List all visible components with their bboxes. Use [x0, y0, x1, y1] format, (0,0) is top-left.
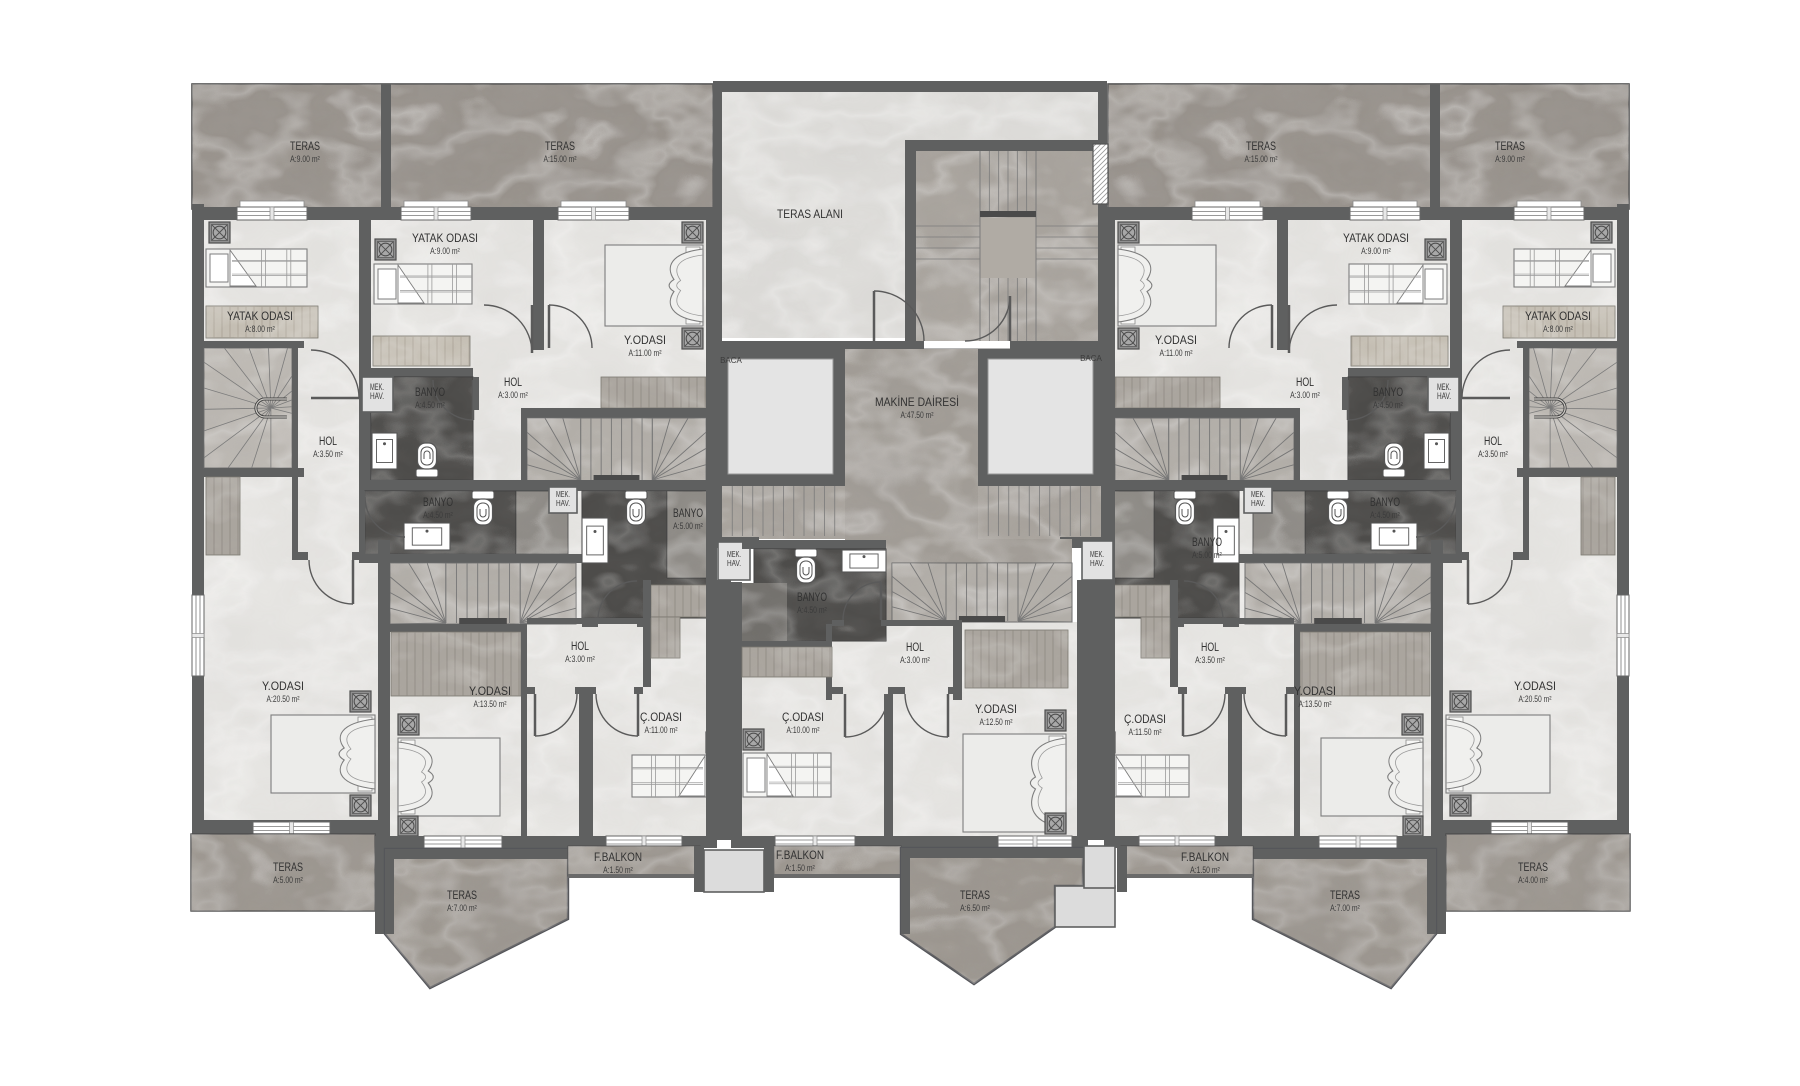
svg-text:A:20.50 m²: A:20.50 m² [1519, 694, 1552, 704]
svg-text:A:9.00 m²: A:9.00 m² [1361, 246, 1391, 256]
svg-text:A:13.50 m²: A:13.50 m² [474, 699, 507, 709]
svg-text:TERAS: TERAS [1518, 860, 1548, 874]
svg-text:HAV.: HAV. [727, 558, 741, 568]
svg-text:BANYO: BANYO [1192, 535, 1222, 549]
svg-text:HOL: HOL [504, 375, 522, 389]
svg-text:A:12.50 m²: A:12.50 m² [980, 717, 1013, 727]
svg-text:BANYO: BANYO [1370, 495, 1400, 509]
svg-text:Y.ODASI: Y.ODASI [975, 702, 1017, 716]
svg-text:A:9.00 m²: A:9.00 m² [430, 246, 460, 256]
svg-text:BANYO: BANYO [673, 506, 703, 520]
svg-text:BANYO: BANYO [423, 495, 453, 509]
svg-text:HAV.: HAV. [556, 499, 570, 508]
svg-text:A:11.00 m²: A:11.00 m² [645, 725, 678, 735]
svg-text:A:9.00 m²: A:9.00 m² [1495, 154, 1525, 164]
svg-text:BANYO: BANYO [1373, 385, 1403, 399]
svg-text:HOL: HOL [1296, 375, 1314, 389]
svg-text:HAV.: HAV. [370, 391, 384, 401]
svg-text:HOL: HOL [319, 434, 337, 448]
svg-text:A:4.50 m²: A:4.50 m² [423, 510, 453, 520]
svg-text:HOL: HOL [1201, 640, 1219, 654]
svg-text:A:4.50 m²: A:4.50 m² [1370, 510, 1400, 520]
svg-text:Y.ODASI: Y.ODASI [1514, 679, 1556, 693]
svg-text:A:6.50 m²: A:6.50 m² [960, 903, 990, 913]
svg-text:A:5.00 m²: A:5.00 m² [673, 521, 703, 531]
svg-text:A:1.50 m²: A:1.50 m² [603, 865, 633, 875]
svg-text:TERAS: TERAS [290, 139, 320, 153]
svg-text:Y.ODASI: Y.ODASI [624, 333, 666, 347]
svg-text:YATAK ODASI: YATAK ODASI [412, 231, 478, 245]
svg-text:A:7.00 m²: A:7.00 m² [1330, 903, 1360, 913]
svg-text:A:7.00 m²: A:7.00 m² [447, 903, 477, 913]
svg-text:A:4.50 m²: A:4.50 m² [415, 400, 445, 410]
svg-text:HAV.: HAV. [1090, 558, 1104, 568]
svg-text:Y.ODASI: Y.ODASI [262, 679, 304, 693]
svg-text:BACA: BACA [1080, 354, 1102, 363]
svg-text:BACA: BACA [720, 356, 742, 365]
svg-text:A:20.50 m²: A:20.50 m² [267, 694, 300, 704]
svg-text:A:11.00 m²: A:11.00 m² [1160, 348, 1193, 358]
svg-text:A:3.50 m²: A:3.50 m² [1478, 449, 1508, 459]
svg-text:A:3.00 m²: A:3.00 m² [1290, 390, 1320, 400]
svg-text:A:5.00 m²: A:5.00 m² [273, 875, 303, 885]
svg-text:MEK.: MEK. [1251, 490, 1265, 499]
svg-text:A:3.50 m²: A:3.50 m² [313, 449, 343, 459]
svg-text:HOL: HOL [571, 639, 589, 653]
svg-text:F.BALKON: F.BALKON [776, 848, 824, 862]
svg-text:BANYO: BANYO [415, 385, 445, 399]
svg-text:YATAK ODASI: YATAK ODASI [1343, 231, 1409, 245]
svg-text:A:15.00 m²: A:15.00 m² [1245, 154, 1278, 164]
svg-text:F.BALKON: F.BALKON [594, 850, 642, 864]
svg-text:A:8.00 m²: A:8.00 m² [245, 324, 275, 334]
svg-text:A:47.50 m²: A:47.50 m² [901, 410, 934, 420]
svg-text:A:3.00 m²: A:3.00 m² [900, 655, 930, 665]
svg-text:A:15.00 m²: A:15.00 m² [544, 154, 577, 164]
svg-text:TERAS: TERAS [960, 888, 990, 902]
svg-text:YATAK ODASI: YATAK ODASI [1525, 309, 1591, 323]
svg-text:A:3.00 m²: A:3.00 m² [565, 654, 595, 664]
svg-text:A:13.50 m²: A:13.50 m² [1299, 699, 1332, 709]
svg-text:F.BALKON: F.BALKON [1181, 850, 1229, 864]
svg-text:A:1.50 m²: A:1.50 m² [785, 863, 815, 873]
svg-text:Ç.ODASI: Ç.ODASI [640, 710, 682, 724]
svg-text:TERAS ALANI: TERAS ALANI [777, 207, 843, 221]
svg-text:HOL: HOL [1484, 434, 1502, 448]
svg-text:HAV.: HAV. [1437, 391, 1451, 401]
svg-text:A:9.00 m²: A:9.00 m² [290, 154, 320, 164]
svg-text:A:11.00 m²: A:11.00 m² [629, 348, 662, 358]
svg-text:HOL: HOL [906, 640, 924, 654]
svg-text:A:3.50 m²: A:3.50 m² [1195, 655, 1225, 665]
svg-text:A:1.50 m²: A:1.50 m² [1190, 865, 1220, 875]
svg-text:MEK.: MEK. [556, 490, 570, 499]
svg-text:A:4.00 m²: A:4.00 m² [1518, 875, 1548, 885]
svg-text:Ç.ODASI: Ç.ODASI [1124, 712, 1166, 726]
svg-text:A:3.00 m²: A:3.00 m² [498, 390, 528, 400]
svg-text:A:5.00 m²: A:5.00 m² [1192, 550, 1222, 560]
svg-text:A:10.00 m²: A:10.00 m² [787, 725, 820, 735]
svg-text:TERAS: TERAS [1495, 139, 1525, 153]
svg-text:MAKİNE DAİRESİ: MAKİNE DAİRESİ [875, 395, 959, 409]
svg-text:BANYO: BANYO [797, 590, 827, 604]
svg-text:Y.ODASI: Y.ODASI [469, 684, 511, 698]
svg-text:HAV.: HAV. [1251, 499, 1265, 508]
svg-text:TERAS: TERAS [1246, 139, 1276, 153]
svg-text:Y.ODASI: Y.ODASI [1155, 333, 1197, 347]
svg-text:A:11.50 m²: A:11.50 m² [1129, 727, 1162, 737]
svg-text:A:4.50 m²: A:4.50 m² [1373, 400, 1403, 410]
svg-text:YATAK ODASI: YATAK ODASI [227, 309, 293, 323]
svg-text:TERAS: TERAS [447, 888, 477, 902]
svg-text:TERAS: TERAS [273, 860, 303, 874]
svg-text:TERAS: TERAS [545, 139, 575, 153]
svg-text:Y.ODASI: Y.ODASI [1294, 684, 1336, 698]
svg-text:A:8.00 m²: A:8.00 m² [1543, 324, 1573, 334]
svg-text:A:4.50 m²: A:4.50 m² [797, 605, 827, 615]
svg-text:TERAS: TERAS [1330, 888, 1360, 902]
svg-text:Ç.ODASI: Ç.ODASI [782, 710, 824, 724]
